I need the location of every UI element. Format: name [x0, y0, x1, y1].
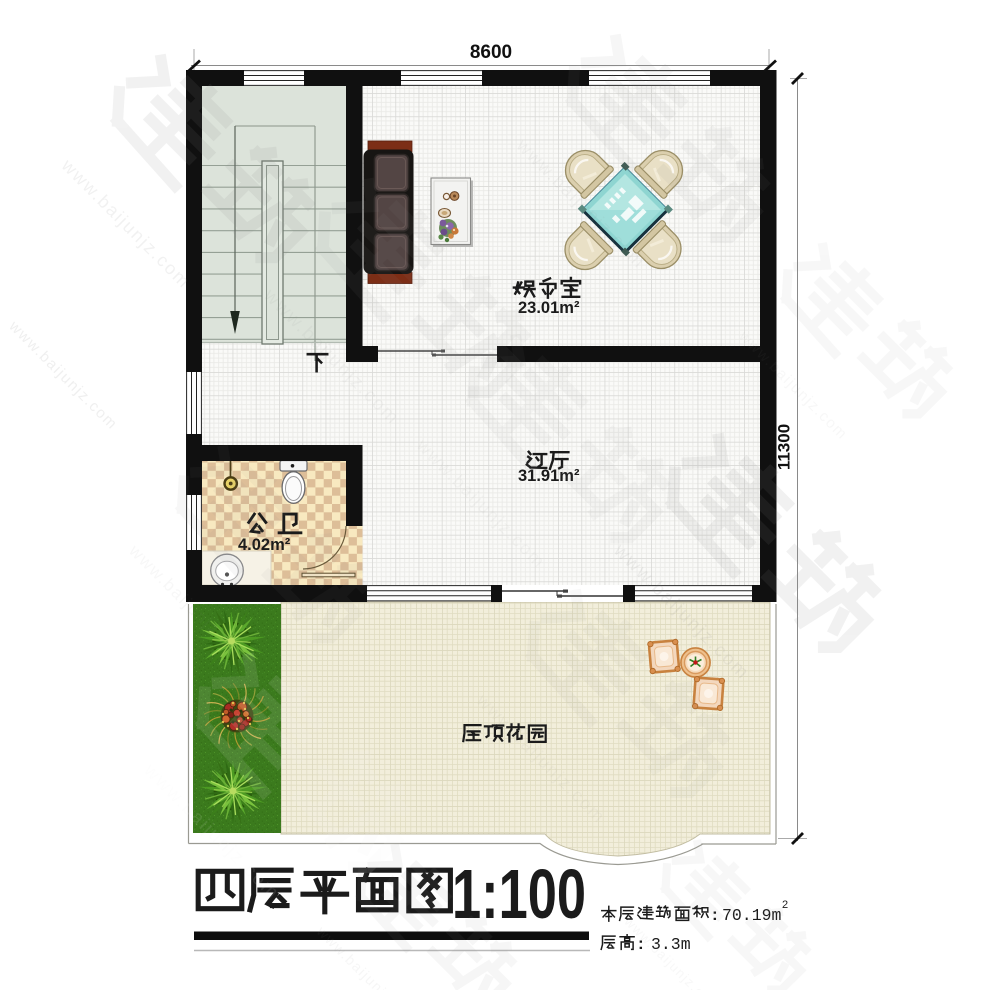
svg-text:2: 2: [782, 899, 788, 911]
svg-text:23.01m²: 23.01m²: [518, 299, 580, 317]
svg-text:11300: 11300: [775, 424, 794, 470]
svg-text:8600: 8600: [470, 42, 512, 63]
